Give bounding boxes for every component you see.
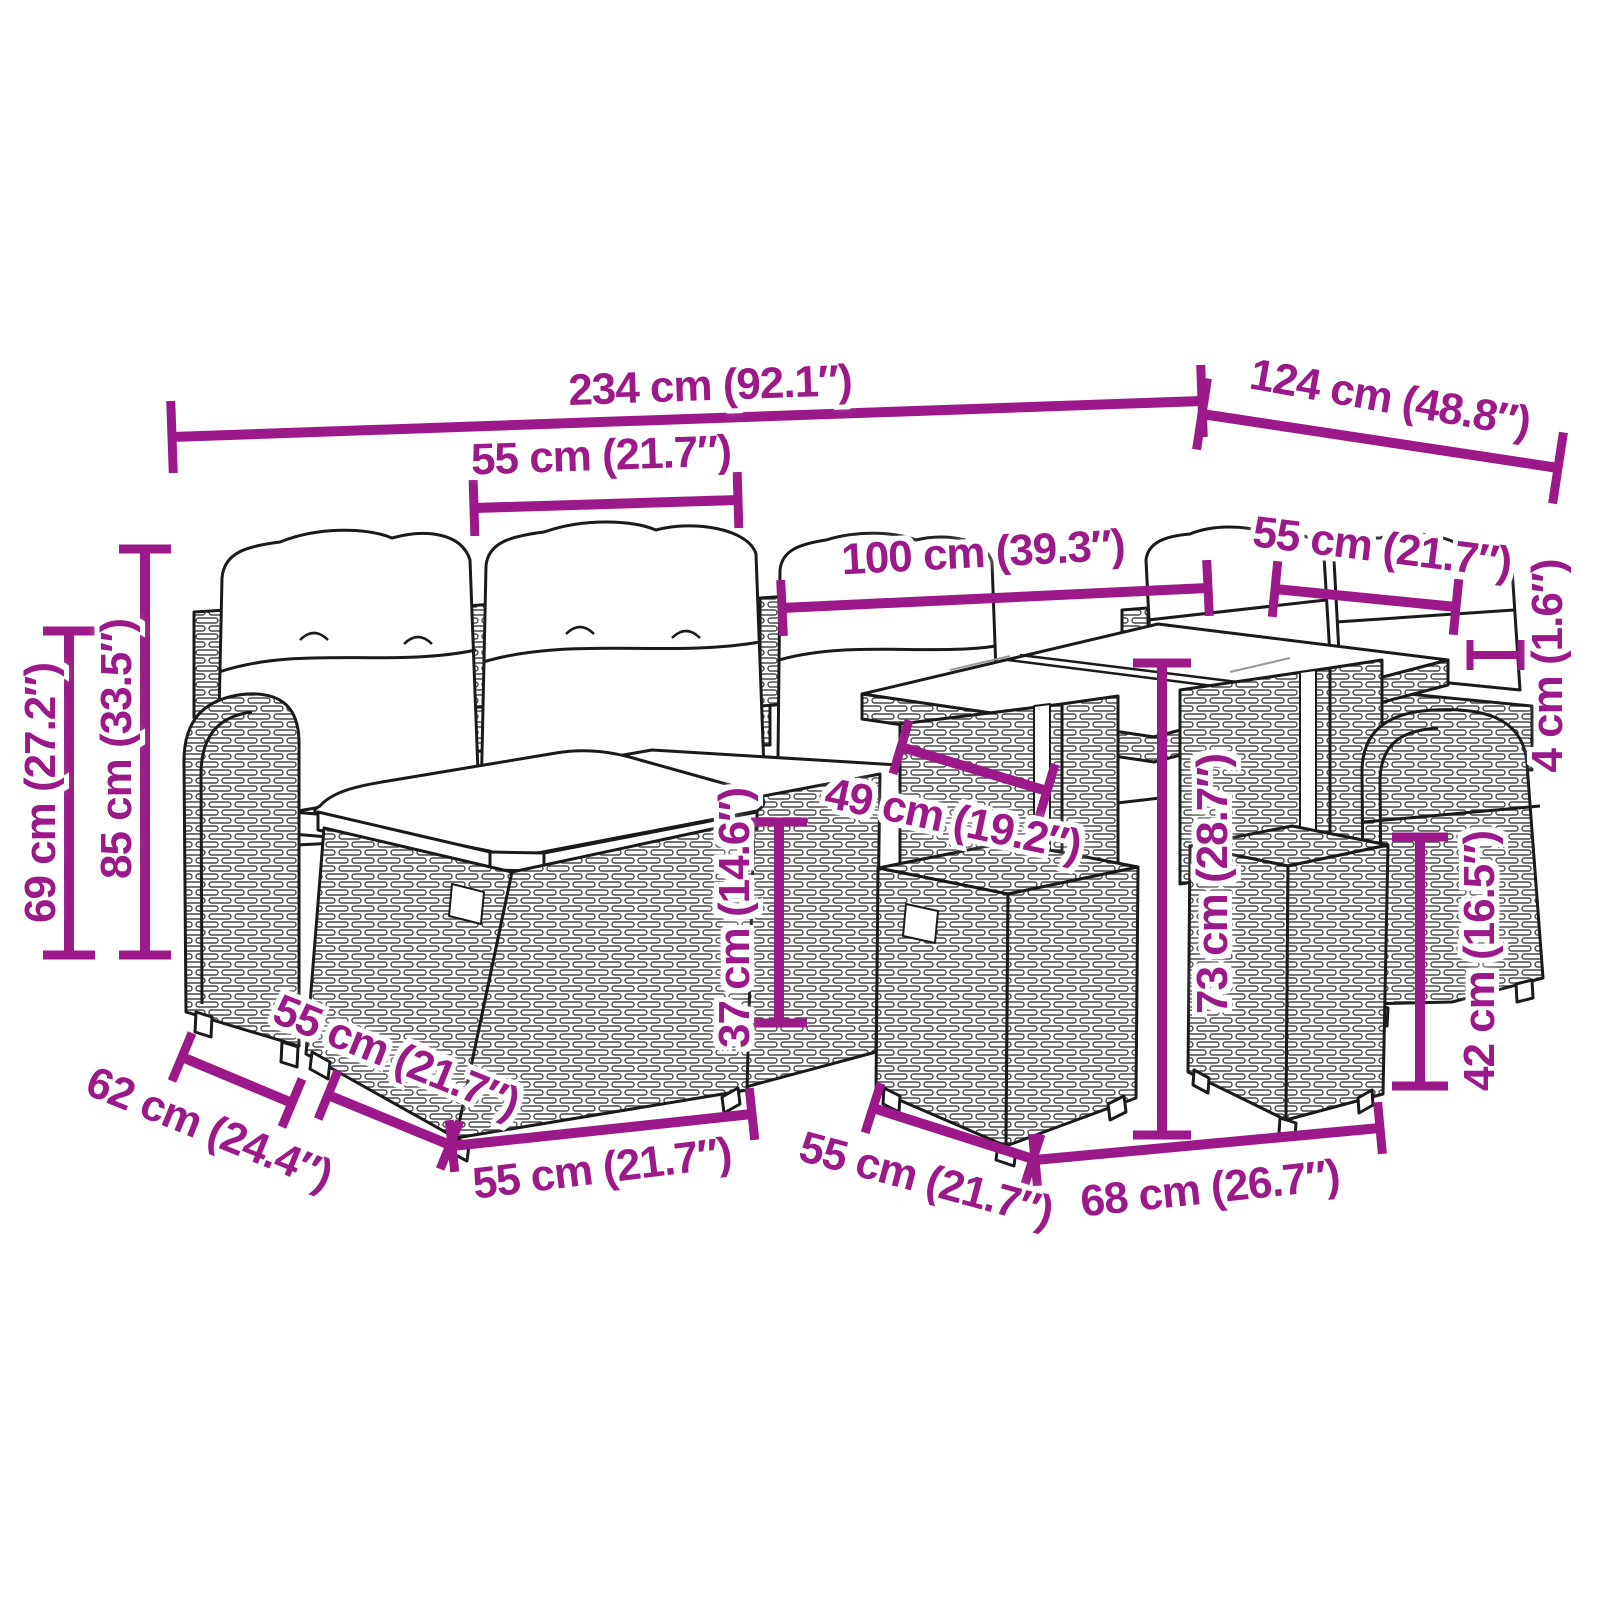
dimension-label-seat-width: 55 cm (21.7″): [470, 426, 732, 485]
dimension-label-total-width: 234 cm (92.1″): [567, 356, 852, 416]
dimension-label-back-height: 85 cm (33.5″): [92, 619, 142, 879]
dimension-label-ottoman-height: 42 cm (16.5″): [1455, 831, 1505, 1091]
dimension-label-seat-height: 37 cm (14.6″): [710, 788, 760, 1048]
dimension-label-tabletop-thickness: 4 cm (1.6″): [1523, 559, 1573, 772]
sofa-arm-right: [1362, 710, 1543, 1026]
furniture-line-art: [0, 0, 1600, 1600]
dimension-label-table-height: 73 cm (28.7″): [1188, 754, 1238, 1014]
dimension-diagram: 234 cm (92.1″)124 cm (48.8″)55 cm (21.7″…: [0, 0, 1600, 1600]
ottoman-with-cushion: [306, 751, 764, 1161]
dimension-label-arm-height: 69 cm (27.2″): [16, 663, 66, 923]
